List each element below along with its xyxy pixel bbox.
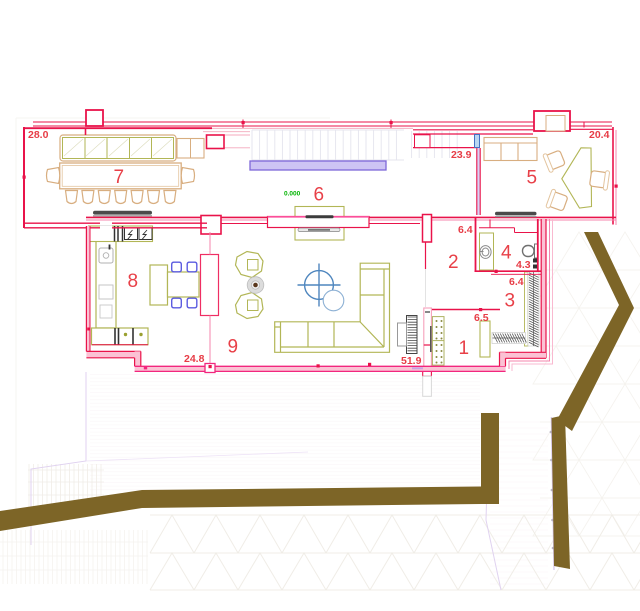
- svg-text:4.3: 4.3: [516, 259, 531, 271]
- svg-text:51.9: 51.9: [401, 355, 422, 367]
- svg-text:7: 7: [114, 167, 125, 188]
- svg-text:3: 3: [505, 291, 516, 312]
- svg-text:20.4: 20.4: [589, 129, 610, 141]
- svg-text:2: 2: [448, 252, 459, 273]
- svg-text:0.000: 0.000: [284, 191, 301, 198]
- svg-text:28.0: 28.0: [28, 129, 49, 141]
- svg-text:5: 5: [527, 168, 538, 189]
- svg-text:6.5: 6.5: [474, 312, 489, 324]
- svg-text:6: 6: [314, 185, 325, 206]
- svg-text:4: 4: [501, 243, 512, 264]
- svg-text:6.4: 6.4: [509, 276, 524, 288]
- svg-text:23.9: 23.9: [451, 149, 472, 161]
- svg-text:6.4: 6.4: [458, 224, 473, 236]
- svg-text:1: 1: [459, 338, 470, 359]
- svg-text:8: 8: [128, 271, 139, 292]
- svg-text:9: 9: [228, 337, 239, 358]
- svg-text:24.8: 24.8: [184, 353, 205, 365]
